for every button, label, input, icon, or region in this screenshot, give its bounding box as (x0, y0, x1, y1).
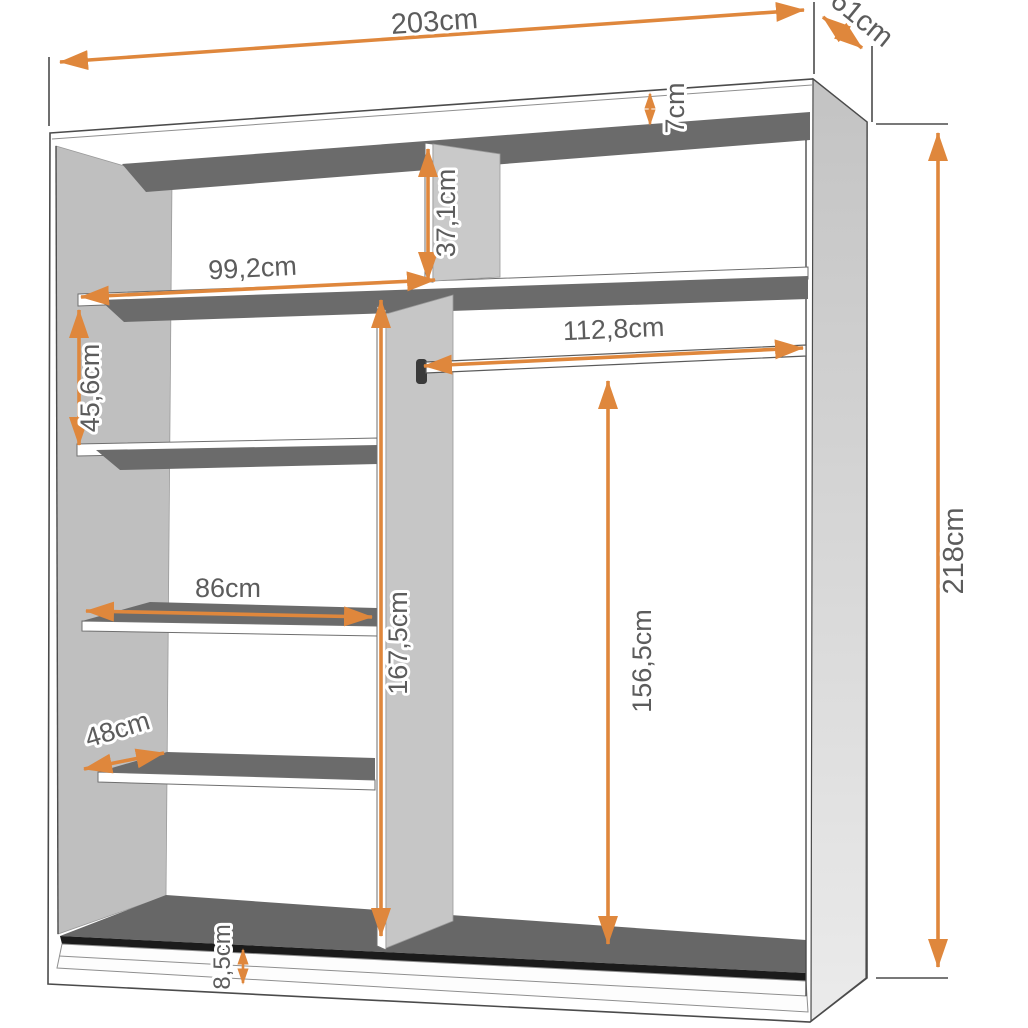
label-shelf-spacing: 45,6cm (75, 344, 105, 433)
label-hanging-space-height: 156,5cm (627, 609, 657, 713)
diagram-canvas: 203cm 61cm 7cm 37,1cm 99,2cm 45,6cm 112,… (0, 0, 1028, 1028)
label-top-compartment-height: 37,1cm (431, 169, 461, 258)
label-top-panel-height: 7cm (660, 82, 690, 133)
label-divider-height: 167,5cm (383, 591, 413, 695)
right-side-panel (811, 79, 867, 1021)
left-side-panel-face (56, 146, 172, 934)
wardrobe-dimension-diagram: 203cm 61cm 7cm 37,1cm 99,2cm 45,6cm 112,… (0, 0, 1028, 1028)
rail-bracket (416, 359, 427, 384)
label-shelf-width: 86cm (195, 573, 261, 603)
label-plinth-height: 8,5cm (209, 924, 236, 989)
label-left-section-width: 99,2cm (208, 251, 298, 286)
label-hanging-rail-width: 112,8cm (562, 312, 665, 346)
label-total-height: 218cm (938, 507, 970, 594)
label-total-width: 203cm (390, 3, 479, 41)
